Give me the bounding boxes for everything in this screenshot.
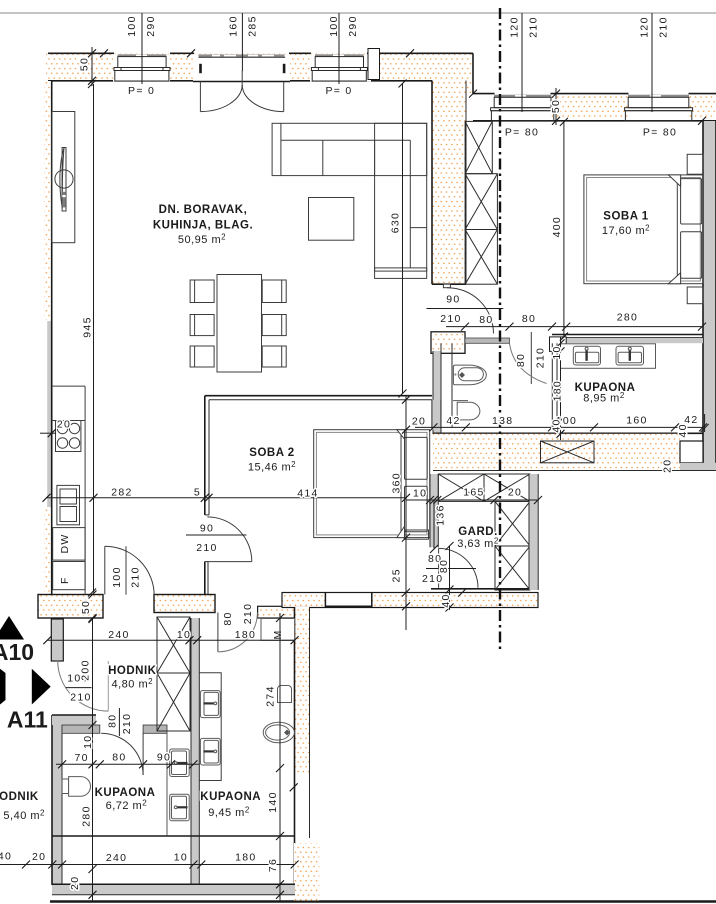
svg-text:90: 90 xyxy=(446,294,460,306)
svg-text:210: 210 xyxy=(535,347,547,368)
svg-text:M: M xyxy=(272,629,284,639)
svg-text:210: 210 xyxy=(528,16,540,37)
svg-text:180: 180 xyxy=(235,629,256,641)
svg-text:240: 240 xyxy=(108,629,129,641)
svg-text:210: 210 xyxy=(440,313,461,325)
svg-text:9,45 m2: 9,45 m2 xyxy=(208,806,250,820)
svg-text:210: 210 xyxy=(196,542,217,554)
svg-text:8,95 m2: 8,95 m2 xyxy=(583,391,625,405)
svg-text:A10: A10 xyxy=(0,639,34,665)
svg-text:P= 0: P= 0 xyxy=(325,85,352,97)
svg-text:50: 50 xyxy=(80,600,92,614)
svg-text:140: 140 xyxy=(267,791,279,812)
svg-text:6,72 m2: 6,72 m2 xyxy=(106,799,148,813)
svg-text:630: 630 xyxy=(390,212,402,233)
svg-text:80: 80 xyxy=(222,611,234,625)
svg-text:10: 10 xyxy=(82,735,94,749)
svg-text:945: 945 xyxy=(82,316,94,337)
svg-text:414: 414 xyxy=(297,488,318,500)
svg-text:40: 40 xyxy=(0,851,12,863)
svg-text:50,95 m2: 50,95 m2 xyxy=(178,233,226,247)
svg-text:210: 210 xyxy=(121,713,133,734)
svg-text:180: 180 xyxy=(552,380,564,401)
svg-text:280: 280 xyxy=(81,805,93,826)
svg-text:80: 80 xyxy=(112,752,126,764)
svg-text:280: 280 xyxy=(617,312,638,324)
svg-text:160: 160 xyxy=(626,415,647,427)
svg-text:210: 210 xyxy=(130,566,142,587)
svg-text:10: 10 xyxy=(413,487,427,499)
svg-text:70: 70 xyxy=(75,752,89,764)
svg-text:285: 285 xyxy=(246,15,258,36)
svg-text:100: 100 xyxy=(126,15,138,36)
svg-text:25: 25 xyxy=(390,568,402,582)
svg-text:DN. BORAVAK,: DN. BORAVAK, xyxy=(159,204,248,216)
svg-text:HODNIK: HODNIK xyxy=(108,665,157,677)
svg-text:P= 80: P= 80 xyxy=(505,127,539,139)
svg-text:17,60 m2: 17,60 m2 xyxy=(602,224,650,238)
svg-text:200: 200 xyxy=(80,659,92,680)
svg-text:274: 274 xyxy=(265,685,277,706)
svg-text:290: 290 xyxy=(347,15,359,36)
svg-text:210: 210 xyxy=(658,16,670,37)
svg-text:SOBA 1: SOBA 1 xyxy=(603,211,648,223)
svg-text:80: 80 xyxy=(438,559,450,573)
svg-text:210: 210 xyxy=(422,573,443,585)
svg-text:100: 100 xyxy=(328,15,340,36)
svg-text:5,40 m2: 5,40 m2 xyxy=(3,809,45,823)
svg-text:40: 40 xyxy=(440,593,452,607)
svg-text:180: 180 xyxy=(235,852,256,864)
svg-text:360: 360 xyxy=(390,472,402,493)
svg-text:40: 40 xyxy=(677,423,689,437)
svg-text:240: 240 xyxy=(106,852,127,864)
svg-text:50: 50 xyxy=(79,57,91,71)
svg-text:KUPAONA: KUPAONA xyxy=(200,791,261,803)
svg-text:20: 20 xyxy=(69,876,81,890)
svg-text:DW: DW xyxy=(59,533,71,553)
svg-text:138: 138 xyxy=(492,415,513,427)
svg-text:80: 80 xyxy=(522,313,536,325)
svg-text:10: 10 xyxy=(174,852,188,864)
svg-text:165: 165 xyxy=(463,487,484,499)
svg-text:210: 210 xyxy=(70,692,91,704)
svg-text:KUHINJA, BLAG.: KUHINJA, BLAG. xyxy=(153,220,253,232)
svg-text:20: 20 xyxy=(412,416,426,428)
svg-text:5: 5 xyxy=(194,487,201,499)
svg-text:F: F xyxy=(59,576,71,584)
svg-text:290: 290 xyxy=(145,15,157,36)
svg-text:136: 136 xyxy=(435,504,447,525)
svg-text:P= 80: P= 80 xyxy=(643,127,677,139)
svg-text:HODNIK: HODNIK xyxy=(0,791,39,803)
svg-text:120: 120 xyxy=(509,16,521,37)
svg-text:4,80 m2: 4,80 m2 xyxy=(112,677,154,691)
svg-text:15,46 m2: 15,46 m2 xyxy=(248,460,296,474)
svg-text:20: 20 xyxy=(57,419,71,431)
svg-text:80: 80 xyxy=(106,714,118,728)
svg-text:282: 282 xyxy=(111,487,132,499)
svg-text:90: 90 xyxy=(200,523,214,535)
svg-text:210: 210 xyxy=(242,603,254,624)
svg-text:50: 50 xyxy=(550,99,562,113)
svg-text:76: 76 xyxy=(267,858,279,872)
svg-text:20: 20 xyxy=(32,851,46,863)
svg-text:80: 80 xyxy=(515,353,527,367)
svg-text:40: 40 xyxy=(550,418,562,432)
svg-text:42: 42 xyxy=(446,415,460,427)
svg-text:KUPAONA: KUPAONA xyxy=(95,787,156,799)
svg-text:80: 80 xyxy=(479,314,493,326)
svg-text:10: 10 xyxy=(177,629,191,641)
svg-text:3,63 m2: 3,63 m2 xyxy=(457,537,499,551)
svg-text:100: 100 xyxy=(111,566,123,587)
svg-text:120: 120 xyxy=(639,16,651,37)
svg-text:10: 10 xyxy=(551,345,563,359)
svg-text:20: 20 xyxy=(661,459,673,473)
svg-text:400: 400 xyxy=(551,216,563,237)
svg-text:A11: A11 xyxy=(7,707,48,733)
svg-text:P= 0: P= 0 xyxy=(128,85,155,97)
svg-text:90: 90 xyxy=(157,752,171,764)
svg-text:GARD.: GARD. xyxy=(458,526,498,538)
svg-text:SOBA 2: SOBA 2 xyxy=(249,447,294,459)
svg-text:20: 20 xyxy=(508,487,522,499)
svg-text:160: 160 xyxy=(227,15,239,36)
